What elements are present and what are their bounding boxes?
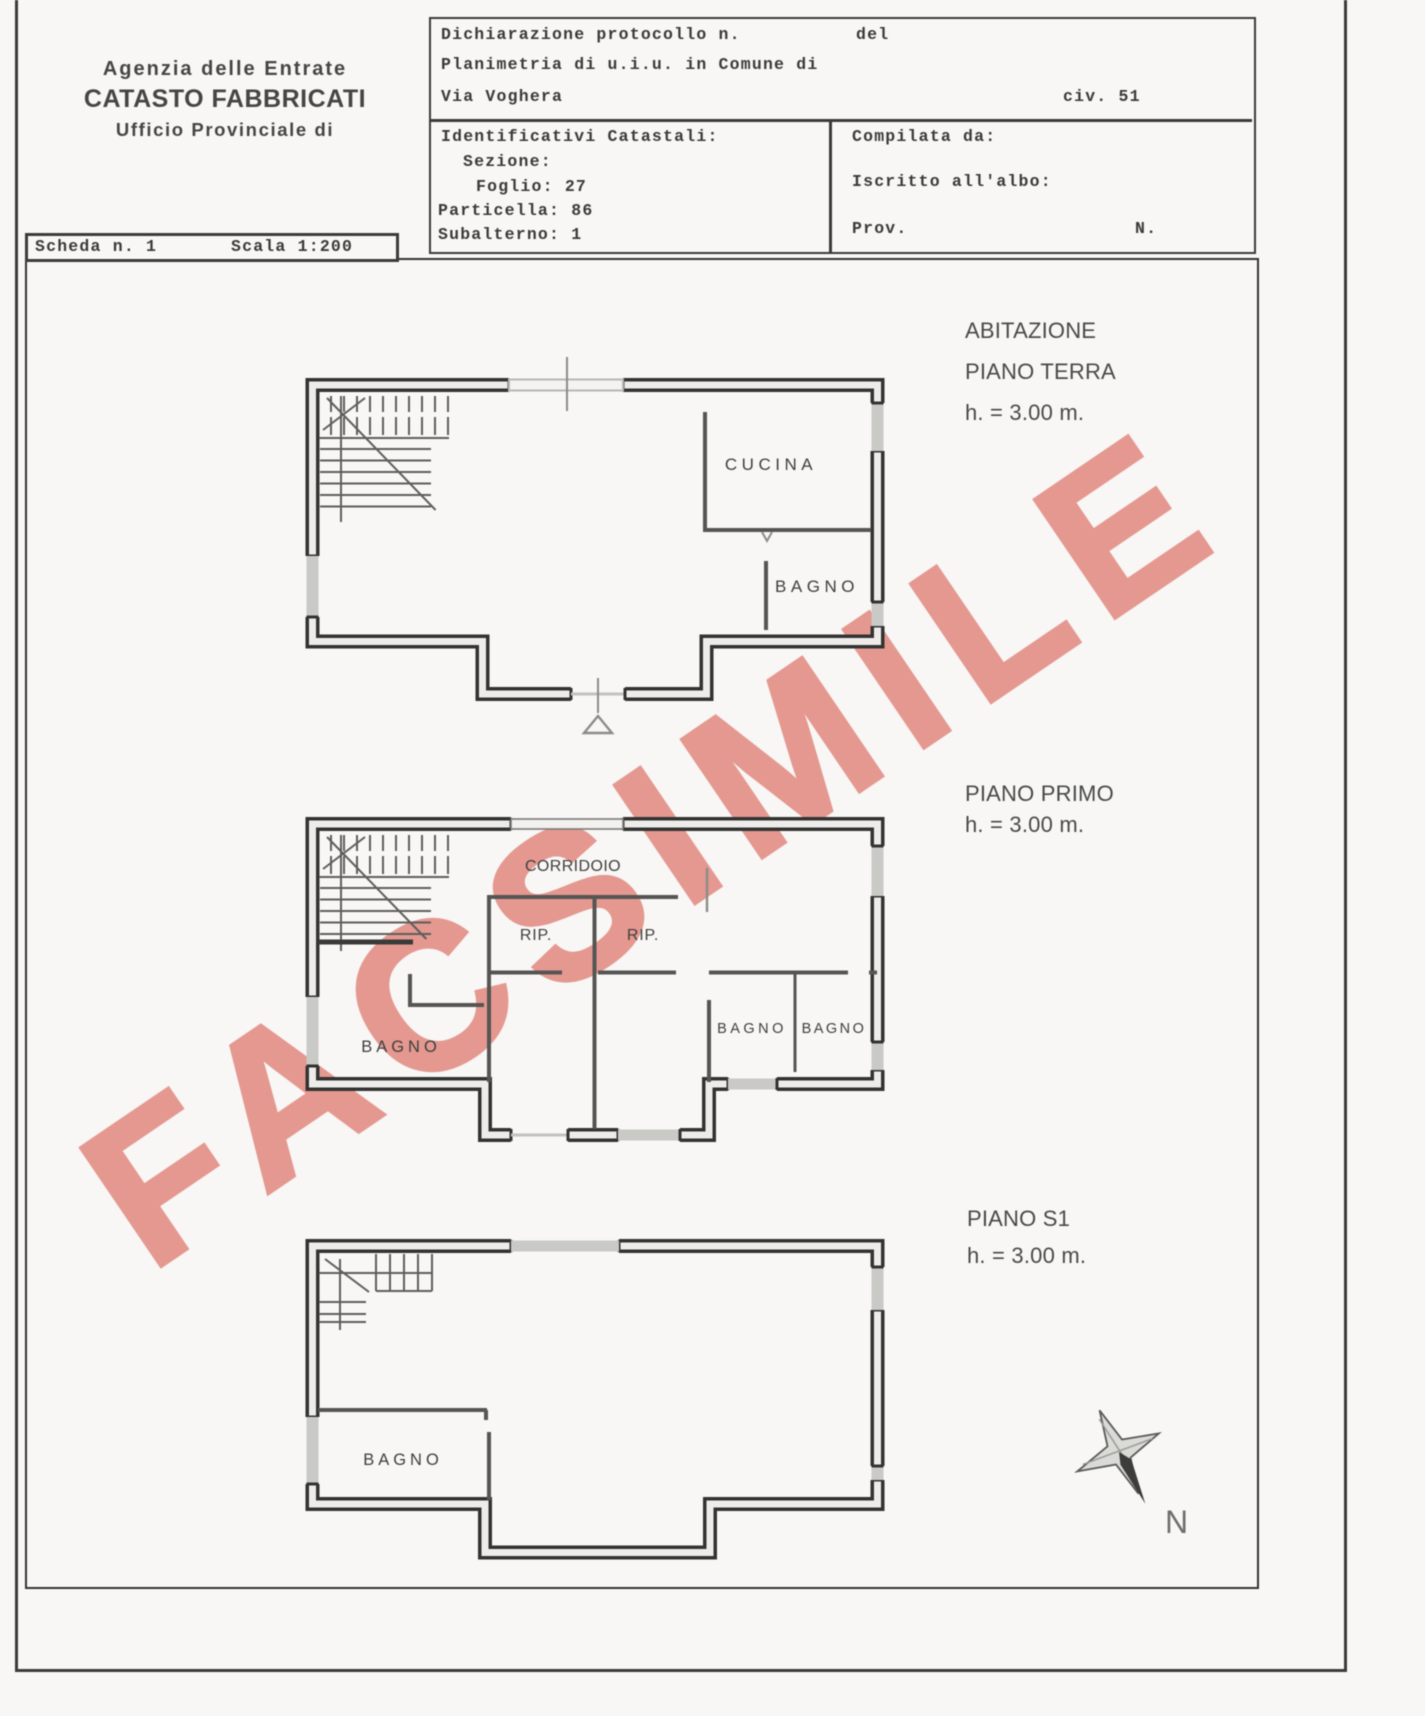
svg-text:BAGNO: BAGNO	[363, 1451, 443, 1469]
svg-text:CORRIDOIO: CORRIDOIO	[525, 858, 621, 875]
svg-text:BAGNO: BAGNO	[361, 1038, 441, 1056]
svg-text:BAGNO: BAGNO	[775, 577, 859, 596]
svg-text:RIP.: RIP.	[627, 927, 659, 944]
svg-text:BAGNO: BAGNO	[717, 1021, 787, 1037]
svg-text:BAGNO: BAGNO	[802, 1021, 867, 1037]
svg-text:CUCINA: CUCINA	[725, 455, 817, 474]
svg-text:RIP.: RIP.	[520, 927, 552, 944]
svg-text:FACSIMILE: FACSIMILE	[45, 380, 1262, 1309]
svg-text:N: N	[1165, 1504, 1188, 1540]
